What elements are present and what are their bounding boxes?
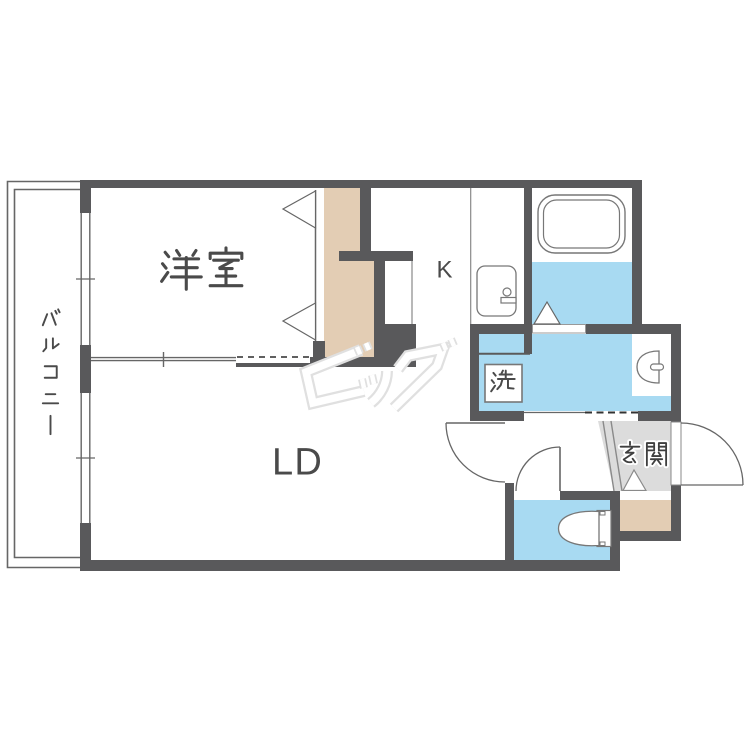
svg-text:LD: LD [272,441,323,483]
svg-text:K: K [436,257,452,284]
